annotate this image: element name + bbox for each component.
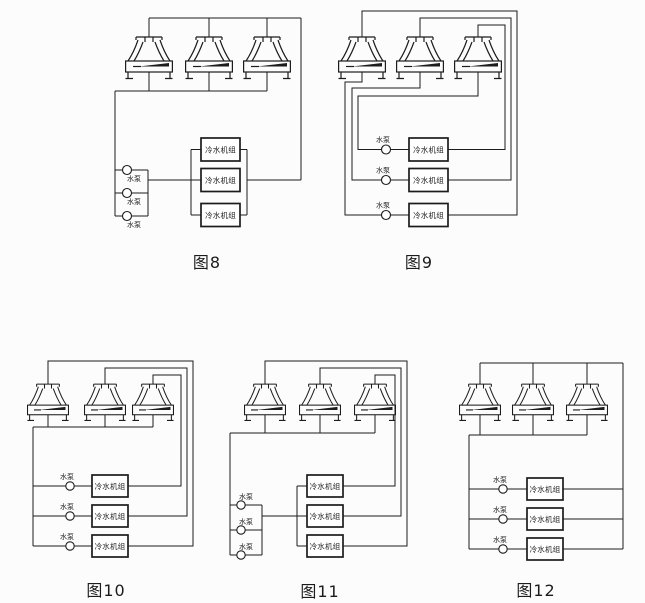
pump-label: 水泵	[376, 135, 390, 144]
chiller-label: 冷水机组	[413, 145, 444, 155]
chiller-unit: 冷水机组	[92, 505, 128, 527]
pump-icon	[382, 176, 391, 185]
pump-label: 水泵	[60, 532, 74, 541]
chiller-unit: 冷水机组	[201, 169, 240, 192]
pump-label: 水泵	[127, 220, 141, 229]
chiller-unit: 冷水机组	[527, 478, 563, 500]
pump-icon	[66, 512, 74, 520]
pump-icon	[237, 501, 245, 509]
figure-11-panel: 冷水机组 冷水机组 冷水机组 水泵 水泵 水泵 图11	[230, 361, 407, 601]
cooling-tower	[132, 384, 173, 420]
pump-label: 水泵	[376, 201, 390, 210]
chiller-label: 冷水机组	[205, 145, 236, 155]
pump-label: 水泵	[493, 475, 507, 484]
pump-icon	[499, 515, 507, 523]
chiller-label: 冷水机组	[413, 210, 444, 220]
figure-12-panel: 冷水机组 冷水机组 冷水机组 水泵 水泵 水泵 图12	[459, 363, 623, 600]
pump-label: 水泵	[493, 505, 507, 514]
chiller-label: 冷水机组	[95, 481, 126, 491]
cooling-tower	[186, 37, 233, 79]
pump-icon	[237, 551, 245, 559]
cooling-tower	[512, 384, 553, 420]
chiller-label: 冷水机组	[205, 175, 236, 185]
pump-icon	[499, 545, 507, 553]
chiller-unit: 冷水机组	[307, 505, 343, 527]
pump: 水泵	[493, 475, 507, 493]
pump: 水泵	[123, 166, 142, 184]
cooling-tower	[299, 384, 340, 420]
chiller-label: 冷水机组	[205, 210, 236, 220]
chiller-label: 冷水机组	[530, 514, 561, 524]
figure-caption: 图10	[86, 581, 125, 600]
pump: 水泵	[237, 492, 253, 509]
cooling-tower	[459, 384, 500, 420]
pump-label: 水泵	[60, 472, 74, 481]
pump-icon	[499, 485, 507, 493]
pump: 水泵	[60, 472, 74, 490]
pump: 水泵	[376, 201, 391, 220]
pump: 水泵	[123, 212, 142, 230]
pump-label: 水泵	[239, 517, 253, 526]
chiller-unit: 冷水机组	[409, 169, 448, 192]
cooling-tower	[84, 384, 125, 420]
pump: 水泵	[493, 505, 507, 523]
chiller-unit: 冷水机组	[409, 138, 448, 161]
pump-icon	[237, 526, 245, 534]
chiller-unit: 冷水机组	[201, 138, 240, 161]
pump: 水泵	[60, 502, 74, 520]
chiller-label: 冷水机组	[310, 511, 341, 521]
pump-label: 水泵	[127, 197, 141, 206]
pump-icon	[123, 189, 132, 198]
chiller-unit: 冷水机组	[201, 204, 240, 227]
chiller-unit: 冷水机组	[409, 204, 448, 227]
pump-label: 水泵	[376, 166, 390, 175]
pump: 水泵	[237, 517, 253, 534]
chiller-label: 冷水机组	[530, 484, 561, 494]
pump-label: 水泵	[60, 502, 74, 511]
chiller-label: 冷水机组	[310, 481, 341, 491]
pump-icon	[123, 212, 132, 221]
pump-icon	[66, 482, 74, 490]
figure-9-panel: 冷水机组 冷水机组 冷水机组 水泵 水泵 水泵 图9	[339, 11, 518, 272]
piping-schematics-canvas: 冷水机组 冷水机组 冷水机组 水泵 水泵 水泵 图8 冷	[0, 0, 645, 603]
cooling-tower	[27, 384, 68, 420]
cooling-tower	[126, 37, 173, 79]
chiller-unit: 冷水机组	[307, 535, 343, 557]
chiller-label: 冷水机组	[530, 544, 561, 554]
pump: 水泵	[60, 532, 74, 550]
pump: 水泵	[237, 542, 253, 559]
cooling-tower	[566, 384, 607, 420]
chiller-label: 冷水机组	[95, 541, 126, 551]
figure-caption: 图11	[300, 582, 339, 601]
pump-icon	[382, 211, 391, 220]
pump: 水泵	[123, 189, 142, 207]
figure-10-panel: 冷水机组 冷水机组 冷水机组 水泵 水泵 水泵 图10	[27, 361, 193, 600]
pump-icon	[123, 166, 132, 175]
figure-caption: 图9	[405, 253, 433, 272]
cooling-tower	[339, 37, 386, 79]
cooling-tower	[244, 37, 291, 79]
pump-label: 水泵	[239, 492, 253, 501]
chiller-label: 冷水机组	[95, 511, 126, 521]
pump: 水泵	[376, 135, 391, 154]
pump-label: 水泵	[239, 542, 253, 551]
chiller-label: 冷水机组	[413, 175, 444, 185]
chiller-unit: 冷水机组	[527, 508, 563, 530]
pump-icon	[382, 145, 391, 154]
figure-8-panel: 冷水机组 冷水机组 冷水机组 水泵 水泵 水泵 图8	[115, 18, 301, 272]
cooling-tower	[455, 37, 502, 79]
chiller-unit: 冷水机组	[307, 475, 343, 497]
pump-label: 水泵	[127, 174, 141, 183]
chiller-label: 冷水机组	[310, 541, 341, 551]
figure-caption: 图12	[516, 581, 555, 600]
pump-label: 水泵	[493, 535, 507, 544]
figure-caption: 图8	[193, 253, 221, 272]
cooling-tower	[354, 384, 395, 420]
pump-icon	[66, 542, 74, 550]
chiller-unit: 冷水机组	[527, 538, 563, 560]
pump: 水泵	[376, 166, 391, 185]
chiller-unit: 冷水机组	[92, 535, 128, 557]
pump: 水泵	[493, 535, 507, 553]
chiller-unit: 冷水机组	[92, 475, 128, 497]
cooling-tower	[397, 37, 444, 79]
cooling-tower	[244, 384, 285, 420]
